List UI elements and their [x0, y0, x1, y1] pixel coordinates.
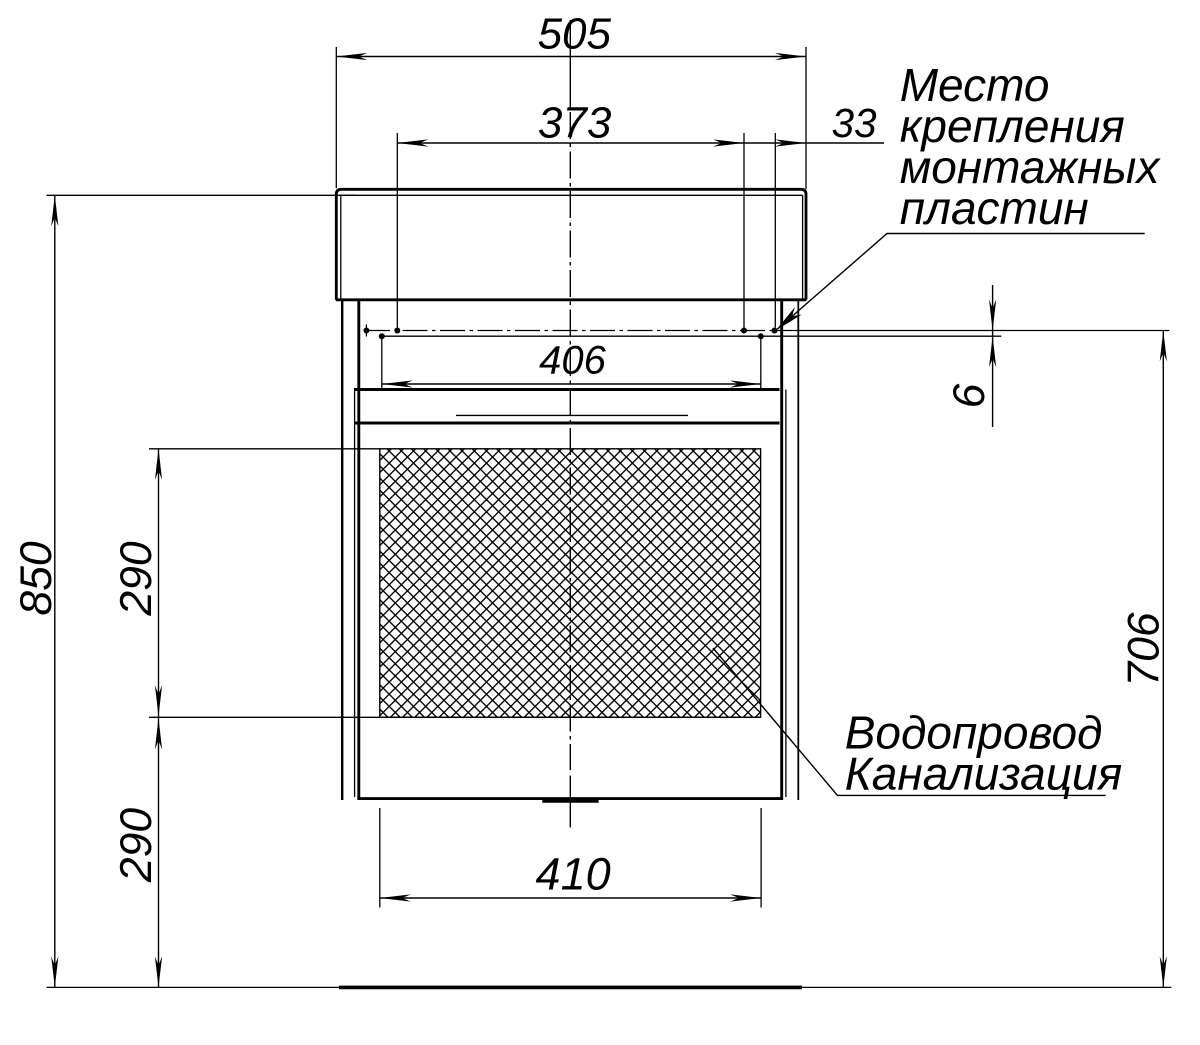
svg-text:406: 406 [539, 339, 606, 383]
svg-text:290: 290 [112, 808, 161, 883]
svg-text:290: 290 [112, 541, 161, 616]
svg-text:706: 706 [1120, 612, 1169, 686]
svg-text:410: 410 [536, 849, 611, 900]
svg-text:505: 505 [538, 10, 612, 59]
svg-text:6: 6 [945, 383, 994, 408]
svg-text:850: 850 [12, 541, 61, 615]
svg-text:Канализация: Канализация [845, 748, 1123, 800]
svg-text:33: 33 [831, 100, 877, 146]
svg-text:пластин: пластин [900, 182, 1089, 234]
svg-text:373: 373 [538, 99, 612, 148]
